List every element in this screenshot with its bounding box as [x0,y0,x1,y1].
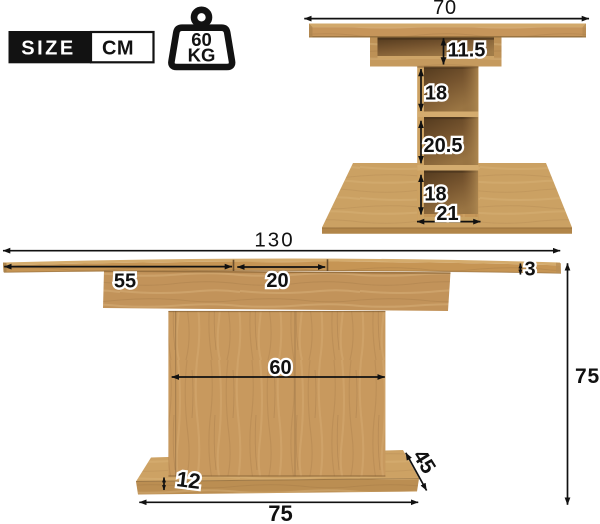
svg-text:55: 55 [114,271,136,293]
svg-text:70: 70 [433,0,457,19]
svg-text:75: 75 [575,365,600,388]
svg-text:75: 75 [268,501,292,524]
svg-text:21: 21 [436,203,458,225]
svg-text:3: 3 [524,259,535,281]
svg-text:20: 20 [266,270,288,292]
svg-text:60: 60 [269,357,291,379]
svg-text:SIZE: SIZE [21,38,75,60]
svg-text:18: 18 [425,82,447,104]
svg-text:11.5: 11.5 [448,40,486,62]
svg-text:12: 12 [175,467,202,494]
svg-text:18: 18 [424,183,446,205]
svg-text:20.5: 20.5 [424,135,463,157]
svg-text:KG: KG [188,44,216,65]
svg-text:CM: CM [102,38,134,60]
svg-text:130: 130 [254,229,294,252]
